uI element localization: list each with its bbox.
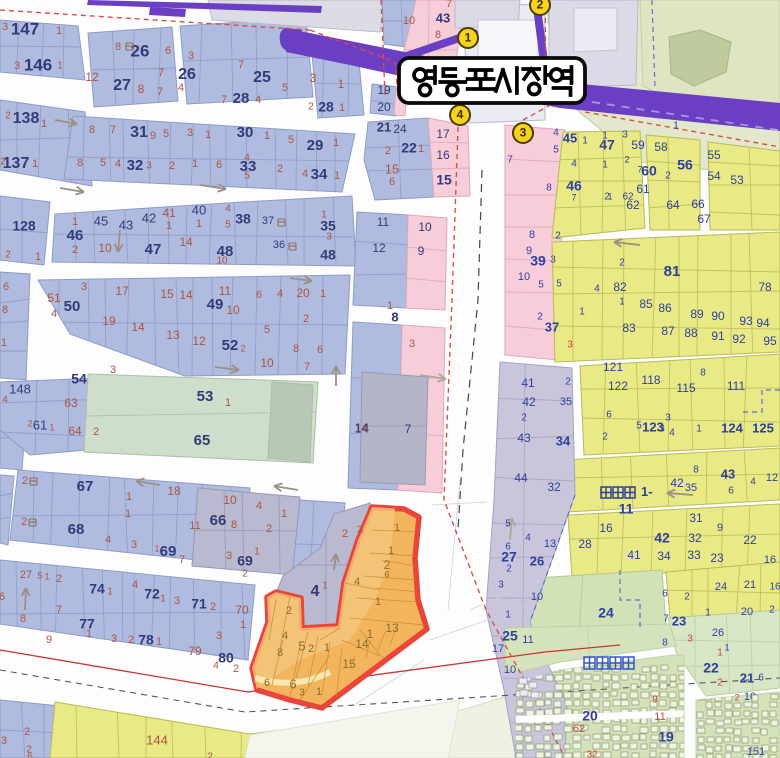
- svg-text:4: 4: [594, 284, 600, 295]
- svg-text:32: 32: [586, 750, 598, 758]
- svg-text:2: 2: [5, 111, 11, 122]
- svg-text:40: 40: [192, 202, 206, 217]
- svg-text:10: 10: [504, 664, 516, 676]
- svg-text:3: 3: [687, 634, 693, 645]
- svg-text:14: 14: [355, 637, 369, 651]
- svg-text:32: 32: [688, 531, 702, 545]
- svg-text:16: 16: [769, 582, 780, 593]
- svg-text:6: 6: [165, 45, 171, 57]
- svg-text:36: 36: [273, 239, 285, 251]
- svg-text:4: 4: [311, 583, 320, 600]
- svg-text:3: 3: [622, 130, 628, 141]
- svg-text:47: 47: [599, 137, 615, 153]
- svg-text:17: 17: [115, 284, 129, 298]
- svg-text:52: 52: [222, 337, 239, 354]
- svg-text:3: 3: [520, 126, 527, 140]
- svg-text:2: 2: [537, 312, 543, 323]
- svg-text:64: 64: [68, 424, 82, 438]
- svg-text:62: 62: [622, 192, 634, 203]
- svg-text:41: 41: [521, 376, 535, 390]
- svg-text:1: 1: [125, 508, 131, 520]
- svg-text:27: 27: [113, 77, 131, 94]
- svg-text:34: 34: [311, 166, 328, 183]
- svg-text:34: 34: [556, 433, 571, 448]
- svg-text:2: 2: [624, 154, 629, 164]
- svg-text:3: 3: [111, 633, 117, 645]
- svg-text:78: 78: [758, 280, 772, 294]
- svg-text:62: 62: [573, 723, 585, 735]
- svg-text:1: 1: [339, 102, 345, 114]
- svg-text:4: 4: [354, 576, 360, 588]
- svg-text:64: 64: [666, 198, 680, 212]
- svg-text:2: 2: [56, 573, 62, 585]
- svg-text:7: 7: [157, 86, 163, 98]
- svg-text:24: 24: [715, 581, 727, 593]
- svg-text:8: 8: [277, 647, 283, 659]
- svg-text:2: 2: [266, 523, 272, 535]
- svg-text:6: 6: [662, 589, 668, 600]
- svg-text:5: 5: [505, 519, 511, 530]
- svg-text:151: 151: [747, 746, 765, 758]
- svg-text:1: 1: [705, 608, 711, 619]
- svg-text:7: 7: [446, 0, 452, 10]
- svg-text:90: 90: [711, 309, 725, 323]
- svg-text:5: 5: [282, 82, 288, 94]
- svg-text:78: 78: [138, 632, 154, 648]
- svg-text:35: 35: [560, 396, 572, 408]
- svg-text:124: 124: [721, 420, 743, 435]
- svg-text:2: 2: [240, 343, 245, 353]
- svg-text:1: 1: [418, 143, 424, 155]
- svg-text:4: 4: [256, 500, 262, 512]
- svg-text:1: 1: [107, 587, 113, 598]
- svg-text:6: 6: [216, 159, 222, 171]
- svg-text:8: 8: [662, 638, 668, 649]
- svg-text:3: 3: [131, 539, 137, 551]
- svg-text:1: 1: [607, 191, 612, 201]
- svg-text:20: 20: [296, 286, 310, 300]
- svg-text:1: 1: [166, 220, 172, 232]
- svg-text:7: 7: [507, 155, 513, 166]
- svg-text:2: 2: [22, 475, 28, 487]
- svg-text:2: 2: [769, 605, 775, 616]
- svg-text:2: 2: [506, 564, 512, 575]
- svg-text:4: 4: [255, 94, 261, 106]
- svg-text:6: 6: [289, 676, 296, 691]
- svg-text:3: 3: [550, 255, 556, 266]
- svg-text:3: 3: [110, 364, 116, 376]
- svg-text:43: 43: [119, 217, 133, 232]
- svg-text:53: 53: [197, 388, 214, 405]
- svg-text:60: 60: [641, 163, 657, 179]
- svg-text:1: 1: [696, 424, 702, 435]
- svg-text:10: 10: [260, 356, 274, 370]
- svg-text:27: 27: [20, 569, 32, 581]
- svg-text:61: 61: [33, 417, 47, 432]
- svg-text:21: 21: [744, 579, 756, 591]
- svg-text:122: 122: [608, 379, 628, 393]
- svg-text:6: 6: [384, 569, 389, 579]
- svg-text:10: 10: [403, 15, 415, 27]
- svg-text:2: 2: [565, 377, 571, 388]
- svg-text:35: 35: [685, 482, 697, 494]
- svg-text:8: 8: [2, 304, 8, 316]
- svg-text:66: 66: [210, 512, 227, 529]
- svg-text:5: 5: [244, 171, 250, 182]
- svg-text:16: 16: [436, 148, 450, 162]
- svg-text:10: 10: [98, 241, 112, 255]
- svg-text:50: 50: [64, 298, 81, 315]
- svg-text:8: 8: [529, 229, 535, 241]
- svg-text:21: 21: [377, 119, 391, 134]
- svg-text:2: 2: [308, 102, 314, 113]
- svg-text:4: 4: [277, 288, 283, 300]
- svg-text:11: 11: [619, 501, 634, 517]
- svg-text:2: 2: [233, 663, 239, 675]
- svg-text:8: 8: [89, 124, 95, 136]
- svg-text:20: 20: [377, 100, 391, 114]
- svg-text:9: 9: [418, 244, 425, 258]
- svg-text:8: 8: [435, 29, 441, 41]
- svg-text:88: 88: [684, 326, 698, 340]
- svg-text:68: 68: [68, 521, 85, 538]
- svg-text:10: 10: [418, 220, 432, 234]
- svg-text:13: 13: [544, 538, 556, 550]
- svg-text:4: 4: [178, 82, 184, 94]
- svg-text:7: 7: [110, 124, 116, 136]
- svg-text:15: 15: [436, 172, 452, 188]
- svg-text:115: 115: [676, 381, 695, 395]
- svg-text:13: 13: [166, 328, 180, 342]
- svg-text:29: 29: [307, 137, 324, 154]
- svg-text:2: 2: [93, 426, 99, 438]
- svg-text:1: 1: [49, 422, 54, 432]
- svg-text:6: 6: [758, 673, 764, 684]
- svg-text:37: 37: [262, 215, 274, 227]
- svg-text:1: 1: [196, 218, 202, 230]
- svg-text:55: 55: [707, 148, 721, 162]
- svg-text:25: 25: [502, 628, 518, 644]
- svg-text:1: 1: [57, 61, 63, 72]
- svg-text:46: 46: [566, 178, 582, 194]
- svg-text:4: 4: [525, 533, 531, 544]
- svg-text:3: 3: [299, 688, 305, 699]
- svg-text:9: 9: [150, 130, 156, 142]
- svg-text:2: 2: [602, 432, 608, 443]
- svg-text:6: 6: [256, 289, 262, 301]
- svg-text:83: 83: [622, 321, 636, 335]
- svg-text:2: 2: [303, 313, 309, 325]
- svg-text:1: 1: [717, 648, 723, 659]
- svg-text:80: 80: [218, 650, 234, 666]
- svg-text:1: 1: [281, 508, 287, 520]
- svg-text:61: 61: [636, 182, 650, 196]
- svg-text:14: 14: [179, 235, 193, 249]
- svg-text:28: 28: [578, 537, 592, 551]
- svg-text:5: 5: [163, 128, 169, 140]
- svg-text:4: 4: [669, 428, 675, 439]
- svg-text:4: 4: [553, 128, 559, 139]
- svg-text:10: 10: [531, 591, 543, 603]
- svg-text:72: 72: [144, 586, 160, 602]
- svg-text:67: 67: [697, 212, 711, 226]
- svg-text:74: 74: [89, 581, 105, 597]
- svg-text:14: 14: [179, 288, 193, 302]
- svg-text:1: 1: [394, 522, 400, 534]
- svg-text:2: 2: [342, 528, 348, 540]
- svg-text:42: 42: [522, 395, 536, 409]
- svg-text:1: 1: [86, 629, 92, 640]
- svg-text:4: 4: [571, 159, 577, 170]
- svg-text:3: 3: [81, 281, 87, 293]
- svg-text:8: 8: [231, 519, 237, 531]
- svg-text:3: 3: [174, 595, 180, 607]
- svg-text:2: 2: [734, 692, 739, 702]
- svg-text:2: 2: [537, 0, 544, 12]
- svg-text:1: 1: [156, 636, 162, 648]
- svg-text:8: 8: [115, 41, 121, 53]
- svg-text:28: 28: [318, 99, 334, 115]
- svg-text:43: 43: [721, 466, 735, 481]
- svg-text:1: 1: [240, 619, 246, 631]
- svg-text:121: 121: [603, 360, 623, 374]
- svg-text:27: 27: [501, 549, 517, 565]
- svg-text:7: 7: [158, 67, 164, 79]
- svg-text:7: 7: [238, 59, 244, 71]
- svg-text:58: 58: [654, 140, 668, 154]
- svg-text:4: 4: [2, 395, 8, 406]
- svg-text:2: 2: [717, 678, 723, 689]
- svg-text:111: 111: [727, 379, 746, 393]
- svg-text:6: 6: [317, 344, 323, 356]
- svg-text:4: 4: [225, 204, 231, 215]
- svg-text:5: 5: [538, 280, 544, 291]
- svg-text:82: 82: [613, 280, 627, 294]
- svg-text:1: 1: [264, 130, 270, 142]
- svg-text:41: 41: [627, 548, 641, 562]
- svg-text:30: 30: [237, 124, 254, 141]
- svg-text:19: 19: [102, 314, 116, 328]
- svg-text:10: 10: [216, 256, 228, 267]
- svg-text:6: 6: [3, 281, 9, 293]
- svg-text:1: 1: [320, 288, 326, 300]
- svg-text:54: 54: [707, 169, 721, 183]
- svg-text:7: 7: [405, 422, 412, 436]
- svg-text:59: 59: [631, 138, 645, 152]
- svg-text:6: 6: [264, 677, 270, 689]
- svg-text:69: 69: [160, 543, 177, 560]
- svg-text:4: 4: [302, 168, 308, 180]
- svg-text:1: 1: [1, 337, 7, 349]
- svg-text:48: 48: [320, 247, 336, 263]
- svg-text:16: 16: [764, 554, 776, 566]
- svg-text:8: 8: [20, 613, 26, 625]
- svg-text:37: 37: [545, 319, 559, 334]
- svg-text:5: 5: [298, 638, 305, 653]
- svg-text:147: 147: [11, 19, 39, 38]
- svg-text:4: 4: [105, 534, 111, 546]
- svg-text:22: 22: [703, 660, 719, 676]
- svg-text:8: 8: [700, 368, 706, 379]
- svg-text:2: 2: [555, 231, 561, 242]
- svg-text:16: 16: [599, 521, 613, 535]
- svg-text:128: 128: [12, 218, 36, 234]
- svg-text:79: 79: [188, 644, 202, 658]
- svg-text:43: 43: [436, 10, 450, 25]
- svg-text:23: 23: [672, 613, 686, 628]
- svg-text:4: 4: [51, 308, 57, 320]
- svg-text:93: 93: [739, 314, 753, 328]
- svg-text:1: 1: [334, 170, 340, 182]
- svg-text:2: 2: [207, 752, 213, 758]
- svg-text:118: 118: [641, 373, 660, 387]
- svg-text:137: 137: [3, 155, 30, 172]
- svg-text:51: 51: [47, 291, 61, 305]
- svg-text:3: 3: [326, 232, 332, 243]
- svg-text:2: 2: [169, 160, 175, 172]
- svg-text:42: 42: [670, 476, 684, 490]
- svg-text:1: 1: [192, 158, 198, 170]
- svg-text:7: 7: [56, 604, 62, 616]
- svg-text:1: 1: [41, 118, 47, 130]
- svg-text:8: 8: [293, 343, 299, 355]
- svg-text:12: 12: [85, 70, 99, 84]
- svg-text:81: 81: [664, 263, 681, 280]
- svg-text:44: 44: [514, 471, 528, 485]
- svg-text:6: 6: [606, 410, 612, 421]
- svg-text:1: 1: [126, 491, 132, 503]
- svg-text:15: 15: [385, 161, 399, 176]
- svg-text:3: 3: [1, 735, 7, 747]
- svg-text:2: 2: [665, 171, 671, 182]
- svg-text:4: 4: [213, 661, 219, 672]
- svg-text:2: 2: [684, 592, 690, 603]
- svg-text:18: 18: [167, 484, 181, 498]
- svg-text:5: 5: [553, 145, 559, 156]
- svg-text:65: 65: [194, 432, 211, 449]
- svg-text:146: 146: [24, 55, 52, 74]
- svg-text:22: 22: [401, 140, 417, 156]
- svg-text:1: 1: [35, 251, 41, 263]
- svg-text:11: 11: [654, 711, 665, 723]
- svg-text:3: 3: [659, 424, 665, 435]
- svg-text:2: 2: [128, 634, 134, 646]
- svg-text:3: 3: [146, 161, 152, 172]
- svg-text:7: 7: [663, 614, 669, 625]
- svg-text:1: 1: [579, 307, 585, 318]
- svg-text:32: 32: [127, 157, 144, 174]
- svg-text:1: 1: [338, 77, 345, 91]
- svg-text:42: 42: [654, 530, 670, 546]
- svg-text:34: 34: [657, 549, 671, 563]
- svg-text:15: 15: [160, 287, 174, 301]
- svg-text:49: 49: [207, 296, 224, 313]
- svg-text:4: 4: [750, 477, 756, 488]
- svg-text:1: 1: [619, 297, 625, 308]
- svg-text:8: 8: [77, 157, 83, 169]
- svg-text:31: 31: [130, 124, 148, 141]
- svg-text:12: 12: [766, 472, 778, 484]
- svg-text:10: 10: [226, 303, 240, 317]
- svg-text:10: 10: [223, 493, 237, 507]
- svg-text:1-: 1-: [641, 484, 653, 499]
- svg-text:3: 3: [409, 338, 415, 350]
- svg-text:63: 63: [64, 396, 78, 410]
- svg-text:2: 2: [286, 605, 292, 617]
- svg-text:45: 45: [94, 213, 108, 228]
- svg-text:39: 39: [530, 253, 546, 269]
- svg-text:5: 5: [100, 157, 106, 169]
- svg-text:1: 1: [316, 686, 322, 698]
- svg-text:42: 42: [142, 210, 156, 225]
- svg-text:5: 5: [264, 324, 270, 336]
- svg-text:13: 13: [385, 621, 399, 635]
- svg-text:26: 26: [712, 627, 724, 639]
- svg-text:1: 1: [465, 31, 472, 45]
- svg-text:1: 1: [324, 642, 330, 654]
- svg-text:3: 3: [14, 60, 20, 72]
- svg-text:2: 2: [521, 413, 527, 424]
- svg-text:2: 2: [0, 157, 6, 168]
- svg-text:148: 148: [9, 381, 31, 396]
- svg-text:5: 5: [37, 570, 42, 580]
- svg-text:2: 2: [619, 258, 625, 269]
- svg-text:6: 6: [389, 176, 395, 188]
- svg-text:3: 3: [187, 127, 193, 139]
- svg-text:2: 2: [5, 250, 11, 261]
- svg-text:20: 20: [582, 708, 598, 724]
- svg-text:22: 22: [743, 533, 757, 547]
- svg-text:11: 11: [189, 520, 200, 532]
- svg-text:2: 2: [242, 569, 248, 580]
- svg-text:2: 2: [24, 726, 30, 738]
- svg-text:1: 1: [225, 397, 231, 409]
- svg-text:4: 4: [282, 630, 288, 642]
- svg-text:71: 71: [191, 596, 207, 612]
- svg-text:32: 32: [547, 480, 561, 494]
- svg-text:20: 20: [741, 606, 753, 618]
- svg-text:3: 3: [310, 71, 317, 85]
- svg-text:1: 1: [375, 596, 381, 608]
- svg-text:2: 2: [308, 643, 314, 655]
- svg-text:2: 2: [385, 145, 391, 157]
- svg-text:5: 5: [225, 220, 231, 231]
- svg-text:6: 6: [27, 752, 33, 758]
- svg-text:12: 12: [192, 334, 206, 348]
- svg-text:19: 19: [377, 83, 391, 97]
- svg-text:1: 1: [602, 160, 608, 171]
- svg-text:1: 1: [582, 136, 588, 147]
- svg-text:1: 1: [32, 158, 38, 170]
- svg-text:85: 85: [639, 297, 653, 311]
- svg-text:94: 94: [756, 316, 770, 330]
- svg-text:10: 10: [518, 271, 530, 283]
- svg-text:24: 24: [393, 122, 407, 136]
- svg-text:1: 1: [724, 642, 729, 652]
- svg-text:2: 2: [72, 244, 78, 256]
- svg-text:70: 70: [235, 603, 249, 617]
- svg-text:23: 23: [710, 551, 724, 565]
- svg-text:41: 41: [162, 206, 176, 220]
- svg-text:2: 2: [21, 516, 27, 528]
- svg-text:1: 1: [388, 545, 394, 557]
- svg-text:9: 9: [652, 695, 658, 706]
- svg-text:3: 3: [226, 550, 232, 562]
- svg-text:1: 1: [44, 571, 49, 581]
- svg-text:1: 1: [56, 25, 62, 37]
- svg-text:4: 4: [132, 579, 138, 591]
- svg-text:4: 4: [115, 158, 121, 170]
